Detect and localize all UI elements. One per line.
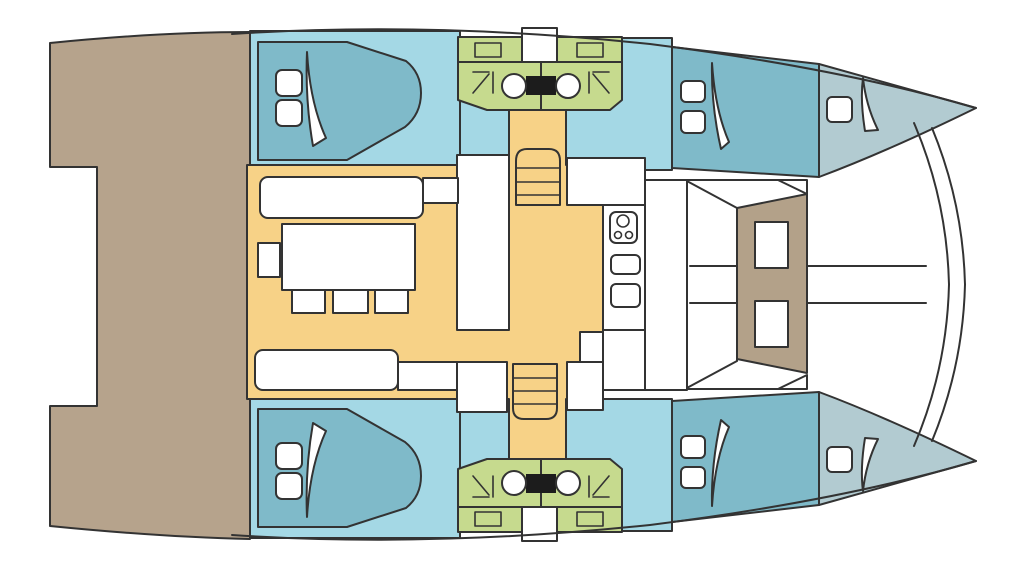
nav-counter xyxy=(457,155,509,330)
stairway-port xyxy=(516,149,560,205)
saloon-bench xyxy=(398,362,457,390)
head-compartment xyxy=(458,28,622,110)
catamaran-floor-plan xyxy=(0,0,1024,569)
berth-pillow xyxy=(681,111,705,133)
forward-cockpit-table xyxy=(737,194,807,373)
toilet-tank xyxy=(526,76,541,95)
toilet-tank xyxy=(541,76,556,95)
stairway-starboard xyxy=(513,364,557,419)
berth-pillow xyxy=(276,100,302,126)
toilet-bowl xyxy=(556,74,580,98)
galley-sink xyxy=(611,284,640,307)
table-leaf xyxy=(755,301,788,347)
galley-counter xyxy=(645,180,687,390)
bow-hatch xyxy=(827,97,852,122)
saloon-sofa-extension xyxy=(423,178,458,203)
saloon-table xyxy=(282,224,415,290)
entry-step xyxy=(457,362,507,412)
galley-counter xyxy=(603,330,645,390)
saloon-chair xyxy=(375,290,408,313)
table-leaf xyxy=(755,222,788,268)
galley-sink xyxy=(611,255,640,274)
galley-counter xyxy=(567,362,603,410)
saloon-sofa xyxy=(260,177,423,218)
saloon-chair xyxy=(292,290,325,313)
head-sink-cabinet xyxy=(458,37,522,62)
galley-counter xyxy=(580,332,603,362)
floor-plan-canvas xyxy=(0,0,1024,569)
berth-pillow xyxy=(276,70,302,96)
berth-pillow xyxy=(681,81,705,102)
galley-counter xyxy=(567,158,645,205)
saloon-bench xyxy=(255,350,398,390)
saloon-chair xyxy=(333,290,368,313)
saloon-chair xyxy=(258,243,280,277)
toilet-bowl xyxy=(502,74,526,98)
